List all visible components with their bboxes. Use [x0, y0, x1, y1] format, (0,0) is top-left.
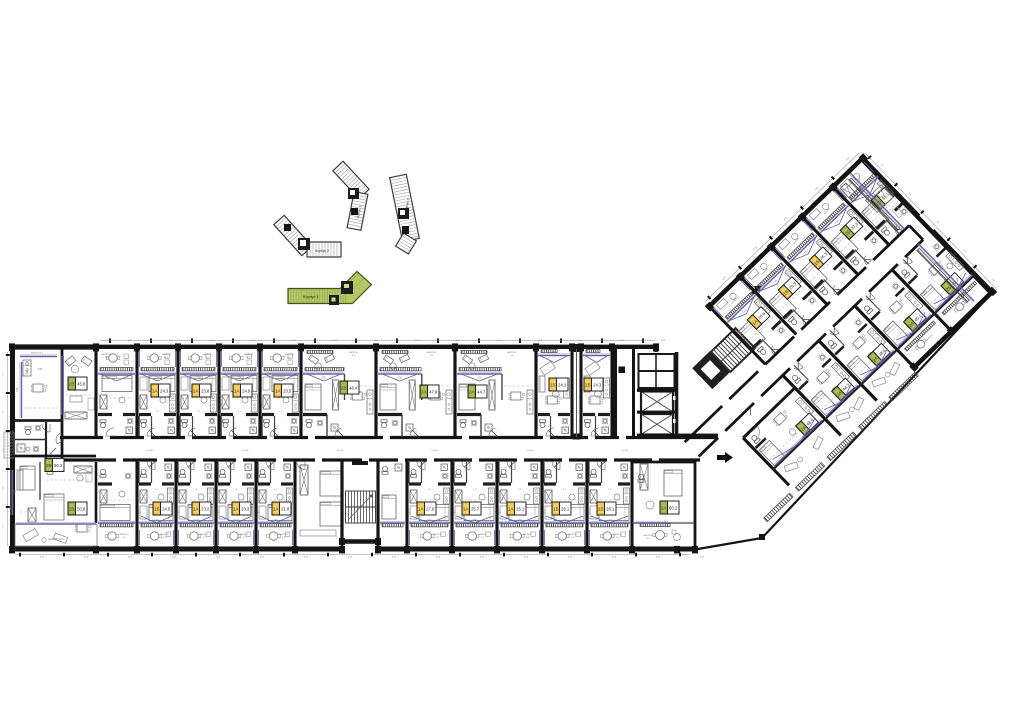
svg-text:БАЛКОН: БАЛКОН: [613, 533, 622, 536]
svg-text:1Б: 1Б: [550, 383, 556, 388]
svg-text:БАЛКОН 4.6: БАЛКОН 4.6: [31, 352, 44, 355]
svg-text:1A: 1A: [193, 507, 200, 512]
svg-text:24.3: 24.3: [160, 389, 169, 394]
svg-text:1Б: 1Б: [553, 507, 559, 512]
svg-text:3,50: 3,50: [397, 377, 402, 380]
svg-text:h=2,62: h=2,62: [242, 450, 250, 452]
svg-text:2,60: 2,60: [472, 519, 477, 522]
svg-text:1A: 1A: [418, 507, 425, 512]
svg-text:2A: 2A: [661, 506, 668, 511]
svg-text:Корпус 2: Корпус 2: [315, 249, 329, 253]
svg-text:3,50: 3,50: [477, 377, 482, 380]
svg-text:2,60: 2,60: [196, 377, 201, 380]
svg-text:2A: 2A: [469, 390, 476, 395]
svg-text:БАЛКОН: БАЛКОН: [162, 353, 171, 356]
svg-text:1Б: 1Б: [598, 507, 604, 512]
svg-text:БАЛКОН: БАЛКОН: [523, 533, 532, 536]
svg-text:24.5: 24.5: [162, 507, 171, 512]
svg-text:2В: 2В: [46, 463, 52, 468]
svg-text:2,60: 2,60: [562, 519, 567, 522]
svg-text:2,60: 2,60: [237, 377, 242, 380]
svg-text:БАЛКОН: БАЛКОН: [160, 533, 169, 536]
svg-text:1A: 1A: [463, 507, 470, 512]
svg-text:1A: 1A: [193, 389, 200, 394]
svg-text:4,05: 4,05: [16, 387, 19, 392]
svg-text:БАЛКОН: БАЛКОН: [244, 353, 253, 356]
svg-text:26.1: 26.1: [606, 507, 615, 512]
svg-text:27.0: 27.0: [426, 507, 435, 512]
svg-text:47.0: 47.0: [429, 390, 438, 395]
svg-text:24.1: 24.1: [558, 383, 567, 388]
svg-text:26.1: 26.1: [561, 507, 570, 512]
svg-text:45.8: 45.8: [77, 382, 86, 387]
svg-text:БАЛКОН: БАЛКОН: [478, 533, 487, 536]
svg-text:2,60: 2,60: [427, 519, 432, 522]
svg-text:2,60: 2,60: [594, 351, 599, 354]
svg-text:50.2: 50.2: [54, 463, 63, 468]
svg-text:БАЛКОН: БАЛКОН: [200, 533, 209, 536]
svg-text:2,60: 2,60: [194, 519, 199, 522]
svg-text:1A: 1A: [275, 389, 282, 394]
svg-text:24.3: 24.3: [593, 383, 602, 388]
svg-text:БАЛКОН: БАЛКОН: [240, 533, 249, 536]
svg-text:2,60: 2,60: [234, 519, 239, 522]
svg-text:1A: 1A: [234, 389, 241, 394]
svg-text:БАЛКОН: БАЛКОН: [120, 533, 129, 536]
svg-text:1Б: 1Б: [585, 383, 591, 388]
svg-text:БАЛКОН: БАЛКОН: [644, 534, 653, 537]
svg-text:3,50: 3,50: [321, 377, 326, 380]
svg-text:БАЛКОН: БАЛКОН: [285, 353, 294, 356]
svg-text:2,60: 2,60: [155, 377, 160, 380]
svg-text:Корпус 1: Корпус 1: [303, 295, 318, 299]
svg-text:3,86: 3,86: [38, 368, 43, 371]
svg-text:БАЛКОН: БАЛКОН: [279, 533, 288, 536]
svg-text:50.8: 50.8: [77, 507, 86, 512]
svg-text:2A: 2A: [421, 390, 428, 395]
svg-text:БАЛКОН: БАЛКОН: [203, 353, 212, 356]
svg-text:2,60: 2,60: [154, 519, 159, 522]
svg-text:БАЛКОН: БАЛКОН: [507, 351, 516, 354]
svg-text:21.8: 21.8: [281, 507, 290, 512]
svg-text:1A: 1A: [508, 507, 515, 512]
svg-text:2,60: 2,60: [273, 519, 278, 522]
svg-text:44.7: 44.7: [477, 390, 486, 395]
svg-text:h=2,62: h=2,62: [527, 450, 535, 452]
svg-text:2,60: 2,60: [607, 519, 612, 522]
svg-text:h=2,62: h=2,62: [622, 450, 630, 452]
svg-text:2,60: 2,60: [517, 519, 522, 522]
svg-text:25.7: 25.7: [471, 507, 480, 512]
svg-text:1A: 1A: [233, 507, 240, 512]
svg-text:1A: 1A: [152, 389, 159, 394]
svg-text:2В: 2В: [69, 382, 75, 387]
svg-text:25.1: 25.1: [516, 507, 525, 512]
svg-text:23.2: 23.2: [201, 507, 210, 512]
svg-text:БАЛКОН: БАЛКОН: [427, 351, 436, 354]
svg-text:4,05: 4,05: [14, 489, 17, 494]
svg-text:БАЛКОН: БАЛКОН: [102, 353, 111, 356]
svg-text:46.4: 46.4: [349, 386, 358, 391]
svg-text:24.9: 24.9: [242, 389, 251, 394]
svg-text:БАЛКОН 13.6: БАЛКОН 13.6: [48, 538, 64, 541]
svg-text:2В: 2В: [69, 507, 75, 512]
svg-text:БАЛКОН: БАЛКОН: [568, 533, 577, 536]
svg-text:23.8: 23.8: [201, 389, 210, 394]
svg-text:БАЛКОН: БАЛКОН: [433, 533, 442, 536]
svg-text:60.2: 60.2: [669, 506, 678, 511]
svg-text:h=2,62: h=2,62: [147, 450, 155, 452]
svg-text:23.5: 23.5: [283, 389, 292, 394]
svg-text:1Б: 1Б: [154, 507, 160, 512]
svg-text:2,60: 2,60: [552, 351, 557, 354]
svg-text:23.3: 23.3: [241, 507, 250, 512]
svg-text:2В: 2В: [341, 386, 347, 391]
svg-text:2,60: 2,60: [278, 377, 283, 380]
svg-text:1A: 1A: [273, 507, 280, 512]
svg-text:h=2,62: h=2,62: [432, 450, 440, 452]
svg-text:БАЛКОН: БАЛКОН: [349, 351, 358, 354]
svg-text:h=2,62: h=2,62: [337, 450, 345, 452]
